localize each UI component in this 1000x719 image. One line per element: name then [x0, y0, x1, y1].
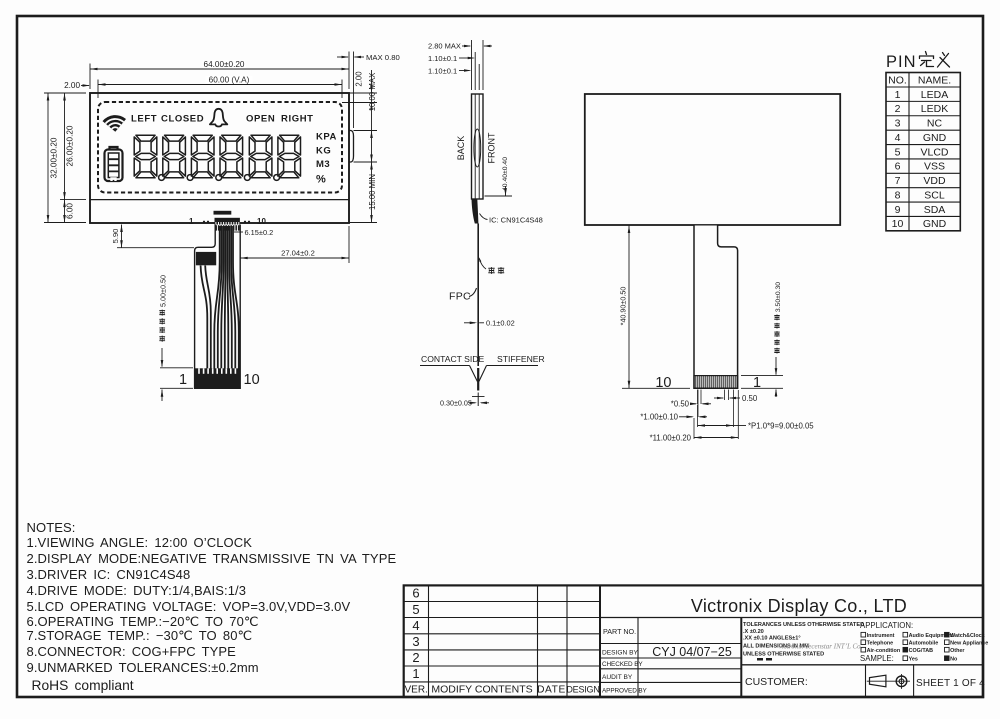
- svg-text:*P1.0*9=9.00±0.05: *P1.0*9=9.00±0.05: [748, 422, 814, 431]
- svg-text:Other: Other: [950, 648, 965, 654]
- svg-text:LEDA: LEDA: [921, 89, 948, 101]
- svg-text:Telephone: Telephone: [867, 641, 894, 647]
- svg-text:10: 10: [892, 218, 904, 230]
- svg-text:0.50: 0.50: [742, 394, 758, 403]
- svg-text:VDD: VDD: [923, 175, 946, 187]
- svg-text:64.00±0.20: 64.00±0.20: [204, 60, 245, 69]
- svg-text:5: 5: [412, 602, 419, 617]
- svg-text:27.04±0.2: 27.04±0.2: [281, 248, 315, 257]
- svg-text:4: 4: [895, 132, 901, 144]
- svg-text:New Appliance: New Appliance: [950, 641, 988, 647]
- svg-text:BACK: BACK: [456, 136, 466, 161]
- svg-text:4: 4: [412, 618, 419, 633]
- svg-text:*40.90±0.50: *40.90±0.50: [619, 287, 628, 326]
- svg-text:SAMPLE:: SAMPLE:: [860, 654, 894, 663]
- svg-text:NAME.: NAME.: [918, 75, 951, 87]
- svg-text:Watch&Clock: Watch&Clock: [950, 633, 985, 639]
- svg-text:5: 5: [895, 146, 901, 158]
- svg-text:GND: GND: [923, 218, 947, 230]
- svg-text:1: 1: [895, 89, 901, 101]
- svg-text:Instrument: Instrument: [867, 633, 895, 639]
- svg-text:26.00±0.20: 26.00±0.20: [66, 125, 75, 166]
- svg-text:2.00: 2.00: [64, 81, 80, 90]
- svg-text:5.00±0.50: 5.00±0.50: [159, 275, 168, 307]
- svg-text:Victronix Display Co., LTD: Victronix Display Co., LTD: [691, 596, 907, 616]
- svg-text:CUSTOMER:: CUSTOMER:: [745, 676, 808, 688]
- svg-text:60.00 (V.A): 60.00 (V.A): [209, 75, 250, 84]
- svg-text:2.DISPLAY MODE:NEGATIVE TRANSM: 2.DISPLAY MODE:NEGATIVE TRANSMISSIVE TN …: [27, 551, 397, 566]
- svg-text:KPA: KPA: [316, 132, 337, 143]
- svg-text:1.10±0.1: 1.10±0.1: [428, 54, 457, 63]
- svg-text:1: 1: [412, 666, 419, 681]
- svg-text:KG: KG: [316, 145, 331, 156]
- svg-text:SDA: SDA: [924, 204, 946, 216]
- svg-text:Yes: Yes: [909, 657, 918, 663]
- svg-text:OPEN: OPEN: [246, 114, 275, 125]
- svg-text:6.00: 6.00: [66, 203, 75, 219]
- svg-text:3.50±0.30: 3.50±0.30: [775, 282, 782, 312]
- svg-text:NOTES:: NOTES:: [27, 520, 76, 535]
- svg-text:DATE: DATE: [537, 685, 566, 696]
- svg-text:COG/TAB: COG/TAB: [909, 648, 934, 654]
- svg-text:SHEET 1 OF 4: SHEET 1 OF 4: [916, 678, 985, 689]
- svg-text:10: 10: [244, 372, 260, 388]
- svg-text:10: 10: [257, 217, 266, 226]
- svg-text:3.DRIVER IC: CN91C4S48: 3.DRIVER IC: CN91C4S48: [27, 567, 191, 582]
- svg-text:4.DRIVE MODE: DUTY:1/4,BAIS:1/: 4.DRIVE MODE: DUTY:1/4,BAIS:1/3: [27, 583, 247, 598]
- svg-text:IC: CN91C4S48: IC: CN91C4S48: [489, 216, 543, 225]
- svg-text:1: 1: [189, 217, 194, 226]
- svg-text:NC: NC: [927, 118, 943, 130]
- svg-text:FPC: FPC: [449, 291, 471, 303]
- svg-text:1: 1: [179, 372, 187, 388]
- svg-text:6: 6: [412, 586, 419, 601]
- svg-text:32.00±0.20: 32.00±0.20: [50, 137, 59, 178]
- svg-text:6: 6: [895, 161, 901, 173]
- svg-text:M3: M3: [316, 159, 330, 170]
- svg-text:VLCD: VLCD: [920, 146, 948, 158]
- svg-text:10.00 MAX: 10.00 MAX: [368, 72, 377, 111]
- svg-text:.X ±0.20: .X ±0.20: [743, 629, 764, 635]
- svg-text:MAX 0.80: MAX 0.80: [366, 53, 400, 62]
- svg-text:RIGHT: RIGHT: [281, 114, 314, 125]
- svg-text:SCL: SCL: [924, 189, 945, 201]
- svg-text:3: 3: [412, 634, 419, 649]
- svg-text:%: %: [316, 174, 326, 186]
- svg-text:LEDK: LEDK: [921, 103, 948, 115]
- svg-text:2: 2: [895, 103, 901, 115]
- svg-text:LEFT: LEFT: [131, 114, 157, 125]
- svg-text:*0.50: *0.50: [671, 400, 690, 409]
- svg-text:APPROVED BY: APPROVED BY: [602, 688, 648, 695]
- svg-text:0.30±0.05: 0.30±0.05: [440, 398, 472, 407]
- svg-text:1.10±0.1: 1.10±0.1: [428, 67, 457, 76]
- svg-text:STIFFENER: STIFFENER: [497, 354, 545, 364]
- svg-text:8.CONNECTOR: COG+FPC TYPE: 8.CONNECTOR: COG+FPC TYPE: [27, 644, 237, 659]
- svg-text:RoHS compliant: RoHS compliant: [32, 678, 134, 693]
- svg-text:UNLESS OTHERWISE STATED: UNLESS OTHERWISE STATED: [743, 652, 824, 658]
- svg-text:0.1±0.02: 0.1±0.02: [486, 319, 515, 328]
- svg-text:1.VIEWING ANGLE: 12:00 O’CLOCK: 1.VIEWING ANGLE: 12:00 O’CLOCK: [27, 535, 253, 550]
- svg-text:8: 8: [895, 189, 901, 201]
- svg-text:*1.00±0.10: *1.00±0.10: [640, 413, 678, 422]
- svg-text:2.80 MAX: 2.80 MAX: [428, 42, 461, 51]
- svg-text:Victronix Tecenstar INT’L Co.: Victronix Tecenstar INT’L Co.: [778, 643, 863, 651]
- svg-text:40.40±0.40: 40.40±0.40: [502, 157, 509, 191]
- svg-text:MODIFY CONTENTS: MODIFY CONTENTS: [431, 684, 532, 696]
- svg-text:9.UNMARKED TOLERANCES:±0.2mm: 9.UNMARKED TOLERANCES:±0.2mm: [27, 660, 259, 675]
- svg-text:6.15±0.2: 6.15±0.2: [245, 228, 274, 237]
- svg-text:APPLICATION:: APPLICATION:: [860, 621, 913, 630]
- svg-text:.XX ±0.10 ANGLES±1°: .XX ±0.10 ANGLES±1°: [743, 636, 801, 642]
- svg-text:DESIGN: DESIGN: [566, 685, 599, 695]
- svg-text:GND: GND: [923, 132, 947, 144]
- svg-text:CYJ 04/07−25: CYJ 04/07−25: [652, 645, 732, 659]
- svg-text:6.OPERATING TEMP.:−20℃ TO 70℃: 6.OPERATING TEMP.:−20℃ TO 70℃: [27, 614, 259, 629]
- svg-text:5.90: 5.90: [111, 229, 120, 244]
- svg-text:NO.: NO.: [888, 75, 907, 87]
- svg-text:9: 9: [895, 204, 901, 216]
- svg-text:*11.00±0.20: *11.00±0.20: [650, 434, 692, 443]
- svg-text:7: 7: [895, 175, 901, 187]
- svg-text:DESIGN BY: DESIGN BY: [602, 650, 639, 657]
- svg-text:AUDIT BY: AUDIT BY: [602, 674, 633, 681]
- svg-text:5.LCD OPERATING VOLTAGE: VOP=3: 5.LCD OPERATING VOLTAGE: VOP=3.0V,VDD=3.…: [27, 599, 351, 614]
- svg-text:PIN: PIN: [886, 53, 917, 71]
- svg-text:3: 3: [895, 118, 901, 130]
- svg-text:CONTACT SIDE: CONTACT SIDE: [421, 354, 484, 364]
- svg-text:CLOSED: CLOSED: [161, 114, 204, 125]
- svg-text:7.STORAGE TEMP.: −30℃ TO 80℃: 7.STORAGE TEMP.: −30℃ TO 80℃: [27, 628, 253, 643]
- svg-text:2.00: 2.00: [355, 71, 364, 87]
- svg-text:Automobile: Automobile: [909, 641, 939, 647]
- svg-text:No: No: [950, 657, 958, 663]
- svg-text:CHECKED BY: CHECKED BY: [602, 661, 643, 668]
- svg-text:2: 2: [412, 650, 419, 665]
- svg-text:FRONT: FRONT: [487, 132, 497, 163]
- svg-text:15.00 MIN: 15.00 MIN: [368, 174, 377, 210]
- svg-text:TOLERANCES UNLESS OTHERWISE ST: TOLERANCES UNLESS OTHERWISE STATED: [743, 622, 864, 628]
- svg-text:VSS: VSS: [924, 161, 945, 173]
- svg-text:VER.: VER.: [405, 685, 428, 696]
- svg-text:PART NO.: PART NO.: [603, 627, 636, 636]
